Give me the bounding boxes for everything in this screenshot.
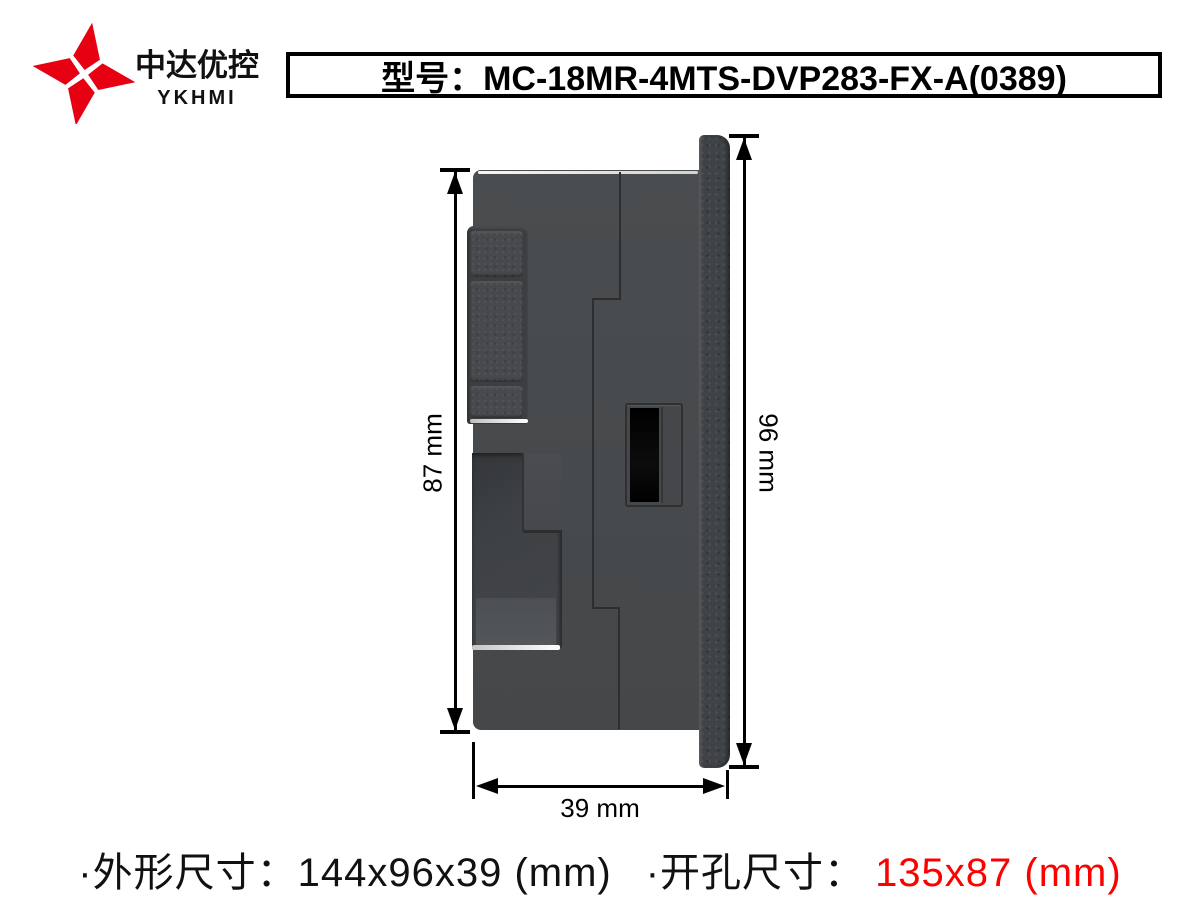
shell-seam-line — [619, 172, 621, 298]
shell-seam-line — [592, 607, 620, 609]
outline-size-text: ·外形尺寸：144x96x39 (mm) — [78, 851, 611, 895]
device-dimension-drawing: 87 mm 96 mm 39 mm — [0, 0, 1200, 900]
dim-39-right-arrow — [703, 778, 725, 794]
terminal-block-segment — [470, 281, 523, 382]
dim-39-line — [492, 785, 708, 788]
side-port-slot — [625, 403, 683, 507]
shell-seam-line — [618, 607, 620, 729]
recess-bottom-highlight — [472, 645, 560, 650]
terminal-block-strip — [467, 226, 528, 424]
port-opening — [630, 408, 659, 502]
mounting-clip-block — [522, 453, 562, 533]
port-divider-line — [661, 407, 663, 503]
dim-96-label: 96 mm — [753, 413, 784, 492]
dim-87-label: 87 mm — [418, 413, 449, 492]
mounting-recess-ledge — [476, 598, 556, 645]
dim-87-bottom-cap — [440, 730, 470, 734]
front-bezel-flange — [699, 135, 730, 768]
terminal-block-segment — [470, 231, 523, 277]
dim-39-label: 39 mm — [560, 793, 639, 824]
dim-96-line — [743, 137, 746, 767]
product-spec-sheet: 中达优控 YKHMI 型号：MC-18MR-4MTS-DVP283-FX-A(0… — [0, 0, 1200, 900]
shell-seam-line — [592, 298, 594, 607]
terminal-strip-highlight — [470, 419, 528, 423]
body-top-edge-highlight — [478, 171, 698, 174]
dim-87-bottom-arrow — [447, 708, 463, 730]
dim-39-right-extension — [726, 770, 729, 799]
dim-96-bottom-arrow — [736, 743, 752, 765]
shell-seam-line — [592, 298, 621, 300]
dim-96-bottom-cap — [729, 765, 759, 769]
terminal-block-segment — [470, 386, 523, 418]
dimension-caption: ·外形尺寸：144x96x39 (mm)·开孔尺寸：135x87 (mm) — [0, 840, 1200, 898]
cutout-size-label: ·开孔尺寸： — [646, 851, 865, 895]
cutout-size-value: 135x87 (mm) — [875, 851, 1122, 895]
dim-39-left-extension — [472, 742, 475, 799]
dim-87-line — [454, 171, 457, 732]
